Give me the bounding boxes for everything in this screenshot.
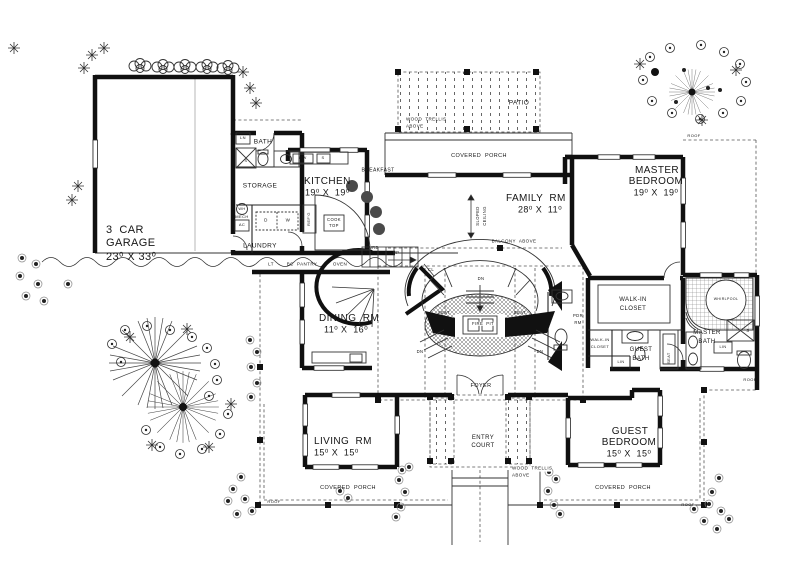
dining-room-dims: 11⁰ X 16⁰ <box>324 325 368 334</box>
wood-trellis-top-line1: WOOD TRELLIS <box>406 118 446 123</box>
living-room-dims: 15⁰ X 15⁰ <box>314 448 359 457</box>
guest-bedroom-line2: BEDROOM <box>602 438 656 449</box>
wh-label: WH <box>238 207 245 211</box>
lt-label: LT <box>268 263 274 268</box>
dryer-label: D <box>264 219 268 224</box>
ceiling-label: CEILING <box>483 206 487 226</box>
guest-bath-line2: BATH <box>632 356 649 362</box>
roof-label-bottom-left: ROOF <box>267 500 280 504</box>
garage-label-line2: GARAGE <box>106 238 155 250</box>
living-room-label: LIVING RM <box>314 437 372 448</box>
fire-pit-label: FIRE PIT <box>471 322 495 326</box>
master-bedroom-line2: BEDROOM <box>629 177 683 188</box>
master-bedroom-dims: 19⁰ X 19⁰ <box>634 188 679 197</box>
landscaping <box>8 41 751 534</box>
family-room-label: FAMILY RM <box>506 194 566 205</box>
cooktop-label-line2: TOP <box>329 224 339 228</box>
refrigerator-label: REF'G <box>307 212 311 226</box>
entry-court-line2: COURT <box>471 443 494 449</box>
ac-label: AC <box>239 223 245 227</box>
covered-porch-bl-label: COVERED PORCH <box>320 486 376 492</box>
shower-s-label-master: S <box>746 329 749 333</box>
guest-bath-line1: GUEST <box>630 347 653 353</box>
entry-court-line1: ENTRY <box>472 435 494 441</box>
curb-label: CURB <box>365 246 378 250</box>
pdr-label-line1: PDR <box>573 314 583 318</box>
kitchen-dims: 19⁰ X 19⁰ <box>305 188 350 197</box>
lin-label-master: LIN <box>719 345 726 349</box>
patio-label: PATIO <box>509 101 530 108</box>
dining-room-label: DINING RM <box>319 314 379 325</box>
guest-bedroom-line1: GUEST <box>612 427 648 438</box>
driveway <box>42 78 458 267</box>
cooktop-label-line1: COOK <box>327 218 341 222</box>
roof-label-bottom-right: ROOF <box>681 503 694 507</box>
wood-trellis-top-line2: ABOVE <box>406 125 424 130</box>
sink-label: S <box>321 156 324 160</box>
shower-s-label: S <box>245 159 248 163</box>
plan-linework <box>0 0 800 586</box>
seat-label-tub: SEAT <box>667 352 671 363</box>
walkin-closet-small-line2: CLOSET <box>591 345 609 349</box>
dn-label-left: DN <box>417 350 424 354</box>
master-bath-line1: MASTER <box>693 330 720 336</box>
balcony-above-label: BALCONY ABOVE <box>492 240 537 245</box>
sloped-ceiling-arrow <box>468 195 474 238</box>
walkin-closet-large-line1: WALK-IN <box>619 297 647 303</box>
breakfast-label: BREAKFAST <box>361 168 394 173</box>
bc-pantry-label: BC PANTRY <box>287 263 318 268</box>
lin-label-guest: LIN <box>617 360 624 364</box>
covered-porch-br-label: COVERED PORCH <box>595 486 651 492</box>
garage-dims: 23⁰ X 33⁰ <box>106 252 156 264</box>
kitchen-label: KITCHEN <box>304 177 351 188</box>
ln-label: LN <box>240 136 246 140</box>
bath-label: BATH <box>254 140 272 147</box>
dining-fixtures <box>312 352 366 363</box>
wood-trellis-bottom-line1: WOOD TRELLIS <box>512 467 552 472</box>
pdr-label-line2: RM <box>574 321 581 325</box>
walkin-closet-large-line2: CLOSET <box>620 306 646 312</box>
sloped-label: SLOPED <box>476 206 480 225</box>
guest-bedroom-dims: 15⁰ X 15⁰ <box>607 449 652 458</box>
dishwasher-label: DW <box>299 156 306 160</box>
roof-label-top: ROOF <box>687 134 700 138</box>
cl-label: CL <box>428 268 434 272</box>
roof-label-right: ROOF <box>743 378 756 382</box>
garage-label-line1: 3 CAR <box>106 225 144 237</box>
master-bedroom-line1: MASTER <box>635 166 679 177</box>
laundry-label: LAUNDRY <box>243 244 277 251</box>
seat-label-right: SEAT <box>514 311 526 315</box>
covered-porch-top-label: COVERED PORCH <box>451 154 507 160</box>
up-label: UP <box>393 251 400 255</box>
foyer-label: FOYER <box>471 384 492 390</box>
dn-label-right: DN <box>537 350 544 354</box>
washer-label: W <box>286 219 291 224</box>
seat-label-left: SEAT <box>438 311 450 315</box>
master-bath-line2: BATH <box>698 339 715 345</box>
storage-label: STORAGE <box>243 184 277 191</box>
walkin-closet-small-line1: WALK-IN <box>590 338 609 342</box>
dn-label-top: DN <box>478 277 485 281</box>
oven-label: OVEN <box>333 263 347 268</box>
mech-label: MECH <box>235 215 248 219</box>
family-room-dims: 28⁰ X 11⁰ <box>518 205 562 214</box>
whirlpool-label: WHIRLPOOL <box>714 298 739 302</box>
floor-plan: 3 CAR GARAGE 23⁰ X 33⁰ BATH LN S STORAGE… <box>0 0 800 586</box>
wood-trellis-bottom-line2: ABOVE <box>512 474 530 479</box>
